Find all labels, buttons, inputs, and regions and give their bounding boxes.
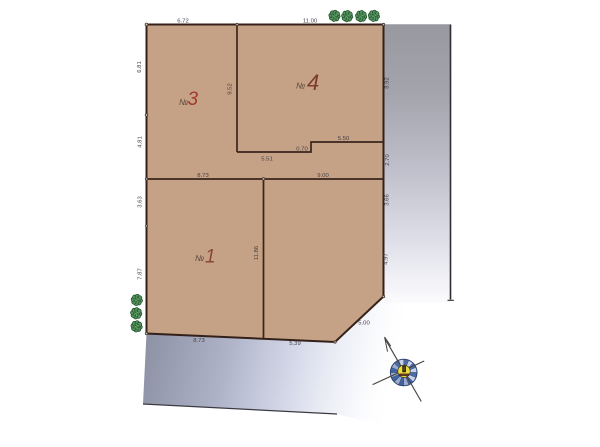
svg-text:9.52: 9.52 [228,83,234,94]
svg-text:6.72: 6.72 [177,18,188,24]
svg-text:2.70: 2.70 [385,154,391,166]
svg-text:8.73: 8.73 [197,173,209,179]
svg-text:11.86: 11.86 [254,245,260,260]
svg-text:3: 3 [188,89,199,110]
svg-text:7.87: 7.87 [138,268,144,279]
svg-text:3.63: 3.63 [138,196,144,208]
svg-text:5.50: 5.50 [338,136,350,142]
svg-text:5.39: 5.39 [289,341,300,347]
svg-text:4.97: 4.97 [384,253,390,264]
svg-text:№: № [195,253,204,263]
svg-text:8.92: 8.92 [385,77,391,88]
svg-text:11.00: 11.00 [303,18,318,24]
svg-text:4: 4 [307,70,319,95]
svg-text:9.00: 9.00 [317,173,329,179]
svg-text:5.51: 5.51 [261,157,272,163]
svg-text:6.81: 6.81 [137,61,143,72]
svg-text:8.73: 8.73 [193,338,205,344]
svg-text:1: 1 [205,247,216,268]
svg-text:4.81: 4.81 [138,136,144,147]
svg-text:№: № [296,81,305,91]
svg-text:5.00: 5.00 [358,321,370,327]
svg-text:0.70: 0.70 [296,147,308,153]
svg-text:3.66: 3.66 [385,194,391,206]
